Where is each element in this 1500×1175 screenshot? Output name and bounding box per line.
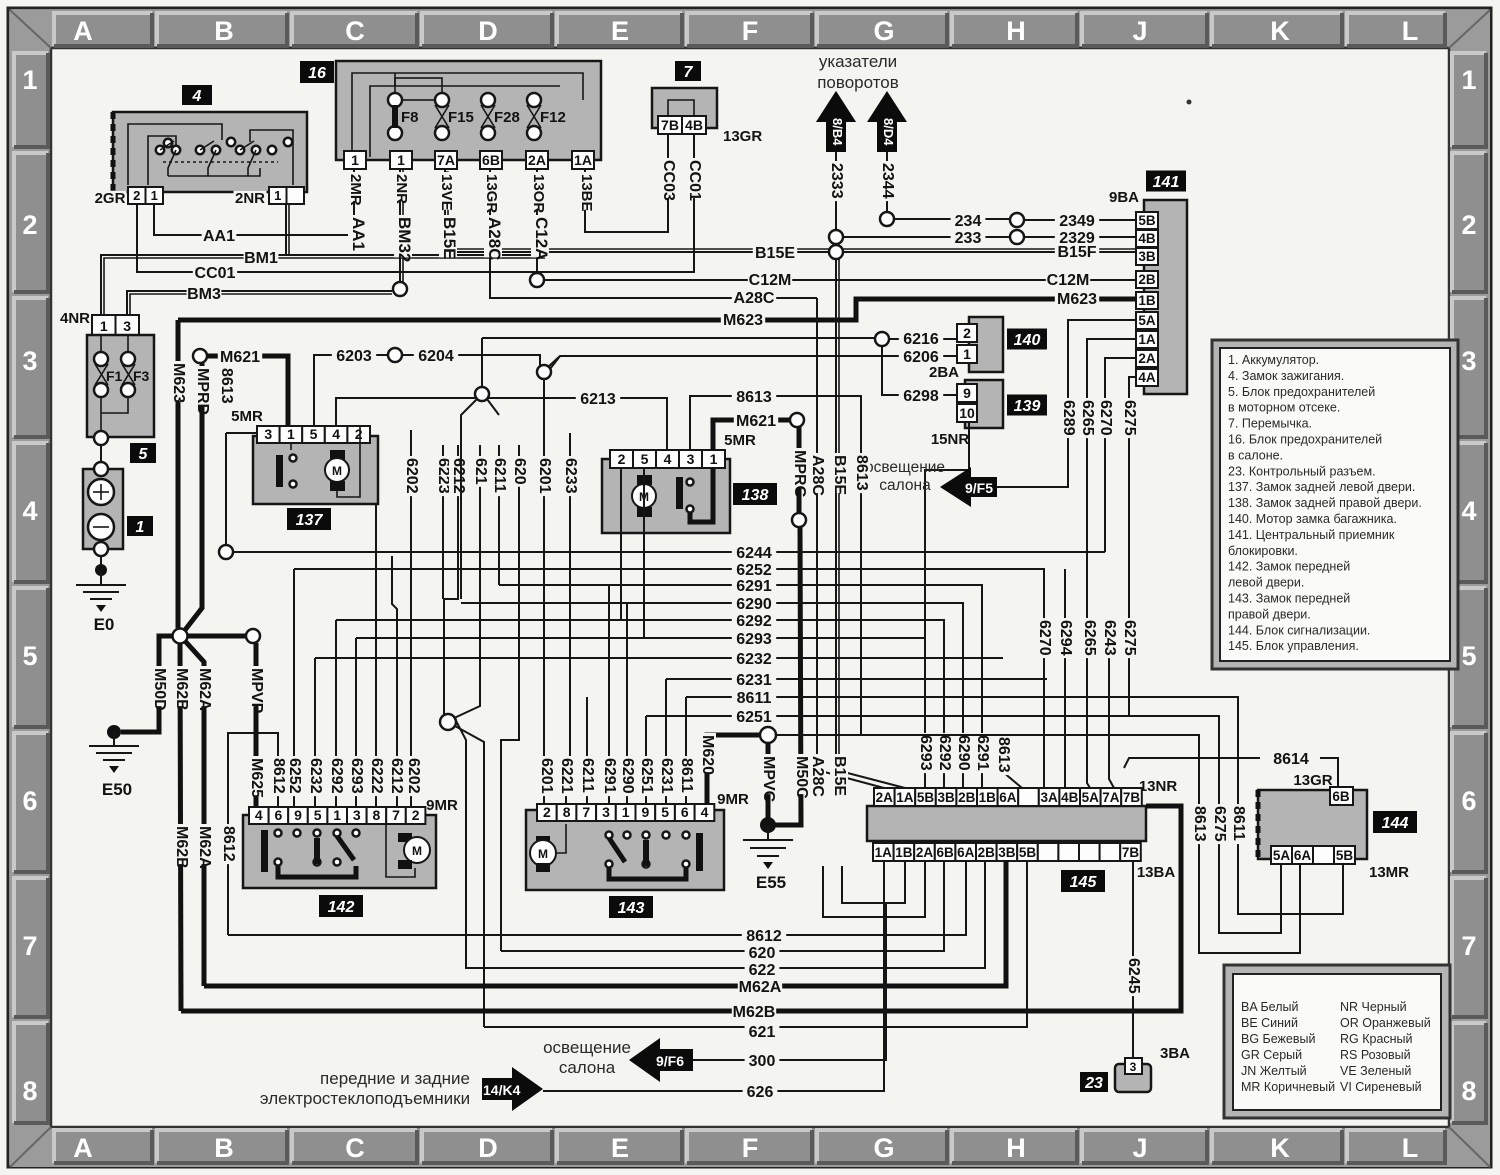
svg-text:4: 4 xyxy=(701,804,709,820)
svg-text:4: 4 xyxy=(1461,496,1476,526)
svg-text:2: 2 xyxy=(412,807,420,823)
svg-text:3: 3 xyxy=(687,451,695,467)
svg-text:2NR: 2NR xyxy=(235,190,265,207)
svg-text:A28C: A28C xyxy=(485,217,504,260)
svg-text:блокировки.: блокировки. xyxy=(1228,544,1298,558)
svg-text:8: 8 xyxy=(1461,1076,1476,1106)
svg-text:1: 1 xyxy=(136,519,145,536)
svg-text:6202: 6202 xyxy=(405,758,422,794)
svg-text:6232: 6232 xyxy=(307,758,324,794)
svg-text:2: 2 xyxy=(133,188,140,203)
svg-text:1: 1 xyxy=(351,152,359,168)
svg-text:5: 5 xyxy=(1461,641,1476,671)
svg-text:5: 5 xyxy=(661,804,669,820)
svg-text:6292: 6292 xyxy=(936,735,953,771)
svg-text:VE Зеленый: VE Зеленый xyxy=(1340,1064,1411,1078)
svg-text:13GR: 13GR xyxy=(723,128,762,145)
svg-text:23: 23 xyxy=(1084,1075,1103,1092)
svg-text:7: 7 xyxy=(392,807,400,823)
svg-text:B15E: B15E xyxy=(831,455,848,495)
svg-text:L: L xyxy=(1402,16,1419,46)
svg-text:A: A xyxy=(73,1133,93,1163)
svg-text:B: B xyxy=(214,1133,234,1163)
svg-text:6212: 6212 xyxy=(450,458,467,494)
svg-text:в салоне.: в салоне. xyxy=(1228,448,1283,462)
svg-text:C12M: C12M xyxy=(1047,272,1090,289)
svg-text:1B: 1B xyxy=(979,790,997,805)
svg-text:1: 1 xyxy=(397,152,405,168)
svg-text:BE Синий: BE Синий xyxy=(1241,1016,1298,1030)
svg-text:MPVC: MPVC xyxy=(760,756,777,803)
svg-text:139: 139 xyxy=(1014,398,1041,415)
svg-text:141: 141 xyxy=(1153,174,1180,191)
svg-text:142: 142 xyxy=(328,899,355,916)
svg-text:4: 4 xyxy=(192,88,202,105)
svg-text:626: 626 xyxy=(747,1084,774,1101)
svg-text:4: 4 xyxy=(255,807,263,823)
svg-text:1: 1 xyxy=(333,807,341,823)
svg-text:6245: 6245 xyxy=(1125,958,1142,994)
svg-text:13BA: 13BA xyxy=(1137,864,1176,881)
svg-text:правой двери.: правой двери. xyxy=(1228,607,1311,621)
svg-text:6290: 6290 xyxy=(955,735,972,771)
svg-text:9: 9 xyxy=(294,807,302,823)
svg-text:4B: 4B xyxy=(1061,790,1079,805)
svg-text:B: B xyxy=(214,16,234,46)
svg-text:143: 143 xyxy=(618,900,645,917)
svg-text:1: 1 xyxy=(151,188,158,203)
svg-text:5B: 5B xyxy=(1019,845,1037,860)
svg-text:2A: 2A xyxy=(876,790,894,805)
svg-text:2344: 2344 xyxy=(879,163,896,199)
svg-text:5: 5 xyxy=(314,807,322,823)
svg-text:9MR: 9MR xyxy=(717,791,749,808)
svg-text:M: M xyxy=(332,464,342,478)
svg-text:3B: 3B xyxy=(1138,249,1156,264)
svg-text:13GR: 13GR xyxy=(483,174,500,213)
svg-text:M62B: M62B xyxy=(173,826,190,869)
svg-text:OR Оранжевый: OR Оранжевый xyxy=(1340,1016,1431,1030)
svg-text:6243: 6243 xyxy=(1101,620,1118,656)
svg-text:1: 1 xyxy=(287,426,295,442)
svg-text:передние и задние: передние и задние xyxy=(320,1069,470,1088)
svg-text:B15E: B15E xyxy=(755,245,795,262)
svg-text:6265: 6265 xyxy=(1081,620,1098,656)
svg-text:8611: 8611 xyxy=(678,758,695,793)
svg-text:5. Блок предохранителей: 5. Блок предохранителей xyxy=(1228,385,1375,399)
svg-text:6211: 6211 xyxy=(579,758,596,793)
svg-text:B15E: B15E xyxy=(440,217,459,260)
svg-text:указатели: указатели xyxy=(819,52,897,71)
svg-text:1: 1 xyxy=(274,188,281,203)
svg-text:6: 6 xyxy=(1461,786,1476,816)
svg-text:F1: F1 xyxy=(106,368,123,384)
svg-text:F: F xyxy=(742,16,759,46)
svg-text:145: 145 xyxy=(1070,874,1098,891)
svg-text:8613: 8613 xyxy=(995,737,1012,773)
svg-text:6292: 6292 xyxy=(328,758,345,794)
svg-text:6293: 6293 xyxy=(736,631,772,648)
svg-text:A28C: A28C xyxy=(734,290,775,307)
svg-text:M: M xyxy=(412,844,422,858)
svg-text:BG Бежевый: BG Бежевый xyxy=(1241,1032,1315,1046)
svg-text:8: 8 xyxy=(373,807,381,823)
svg-text:16: 16 xyxy=(308,65,326,82)
svg-text:6201: 6201 xyxy=(538,758,555,794)
svg-text:1B: 1B xyxy=(1138,293,1156,308)
svg-text:3B: 3B xyxy=(937,790,955,805)
svg-text:E50: E50 xyxy=(102,780,132,799)
svg-text:1B: 1B xyxy=(895,845,913,860)
svg-text:BM1: BM1 xyxy=(244,250,278,267)
svg-text:5: 5 xyxy=(641,451,649,467)
svg-text:6203: 6203 xyxy=(336,348,372,365)
svg-text:8612: 8612 xyxy=(746,928,782,945)
svg-text:5MR: 5MR xyxy=(231,408,263,425)
svg-text:4A: 4A xyxy=(1138,370,1156,385)
svg-text:3: 3 xyxy=(353,807,361,823)
svg-text:B15E: B15E xyxy=(831,756,848,796)
svg-text:5: 5 xyxy=(22,641,37,671)
svg-text:7A: 7A xyxy=(437,152,455,168)
svg-text:M623: M623 xyxy=(723,312,763,329)
svg-text:138: 138 xyxy=(742,487,769,504)
svg-text:поворотов: поворотов xyxy=(817,73,899,92)
svg-text:1: 1 xyxy=(963,346,971,362)
svg-text:138. Замок задней правой двери: 138. Замок задней правой двери. xyxy=(1228,496,1422,510)
svg-text:6221: 6221 xyxy=(558,758,575,794)
svg-text:137: 137 xyxy=(296,512,324,529)
svg-text:9MR: 9MR xyxy=(426,797,458,814)
svg-text:D: D xyxy=(478,1133,498,1163)
svg-text:GR Серый: GR Серый xyxy=(1241,1048,1302,1062)
svg-text:6B: 6B xyxy=(1332,789,1350,804)
svg-text:E: E xyxy=(611,1133,629,1163)
svg-text:C: C xyxy=(345,16,365,46)
svg-text:3: 3 xyxy=(22,346,37,376)
svg-text:23. Контрольный разъем.: 23. Контрольный разъем. xyxy=(1228,464,1376,478)
svg-text:9/F6: 9/F6 xyxy=(656,1053,684,1069)
svg-text:2: 2 xyxy=(22,210,37,240)
svg-text:6252: 6252 xyxy=(736,562,772,579)
svg-text:4B: 4B xyxy=(685,117,703,133)
svg-text:143. Замок передней: 143. Замок передней xyxy=(1228,592,1350,606)
svg-text:6A: 6A xyxy=(957,845,975,860)
svg-text:MPRD: MPRD xyxy=(194,368,211,415)
svg-text:6202: 6202 xyxy=(403,458,420,494)
svg-text:6270: 6270 xyxy=(1097,400,1114,436)
svg-text:6B: 6B xyxy=(482,152,500,168)
svg-text:C12M: C12M xyxy=(749,272,792,289)
svg-text:140. Мотор замка багажника.: 140. Мотор замка багажника. xyxy=(1228,512,1397,526)
svg-text:300: 300 xyxy=(749,1053,776,1070)
svg-text:13VE: 13VE xyxy=(438,174,455,211)
svg-text:3A: 3A xyxy=(1040,790,1058,805)
svg-text:CC01: CC01 xyxy=(686,160,703,201)
svg-text:M50C: M50C xyxy=(793,756,810,799)
svg-text:5: 5 xyxy=(139,446,149,463)
svg-text:144. Блок сигнализации.: 144. Блок сигнализации. xyxy=(1228,623,1370,637)
svg-text:5MR: 5MR xyxy=(724,432,756,449)
svg-text:2B: 2B xyxy=(1138,272,1156,287)
svg-text:6275: 6275 xyxy=(1211,806,1228,842)
svg-text:2BA: 2BA xyxy=(929,364,959,381)
svg-text:8: 8 xyxy=(563,804,571,820)
svg-text:M623: M623 xyxy=(1057,291,1097,308)
svg-text:RS Розовый: RS Розовый xyxy=(1340,1048,1411,1062)
svg-text:233: 233 xyxy=(955,230,982,247)
svg-text:H: H xyxy=(1006,16,1026,46)
svg-text:3: 3 xyxy=(602,804,610,820)
svg-text:144: 144 xyxy=(1382,815,1409,832)
svg-text:234: 234 xyxy=(955,213,982,230)
svg-text:2NR: 2NR xyxy=(393,174,410,204)
svg-text:8612: 8612 xyxy=(270,758,287,794)
svg-text:MR Коричневый: MR Коричневый xyxy=(1241,1080,1335,1094)
svg-text:E0: E0 xyxy=(94,615,115,634)
svg-text:6251: 6251 xyxy=(638,758,655,794)
svg-text:142. Замок передней: 142. Замок передней xyxy=(1228,560,1350,574)
svg-text:5B: 5B xyxy=(1138,213,1156,228)
svg-text:7. Перемычка.: 7. Перемычка. xyxy=(1228,417,1312,431)
svg-text:6A: 6A xyxy=(999,790,1017,805)
svg-text:5A: 5A xyxy=(1273,848,1291,863)
svg-text:M620: M620 xyxy=(699,735,716,775)
svg-text:L: L xyxy=(1402,1133,1419,1163)
svg-text:2MR: 2MR xyxy=(347,174,364,206)
svg-text:3: 3 xyxy=(123,318,131,334)
svg-text:2: 2 xyxy=(963,325,971,341)
svg-text:6293: 6293 xyxy=(917,735,934,771)
svg-text:3BA: 3BA xyxy=(1160,1045,1190,1062)
svg-text:2: 2 xyxy=(618,451,626,467)
svg-text:8613: 8613 xyxy=(736,389,772,406)
svg-text:K: K xyxy=(1270,1133,1290,1163)
svg-text:BM32: BM32 xyxy=(395,217,414,262)
svg-text:M625: M625 xyxy=(248,758,265,798)
svg-text:1: 1 xyxy=(22,65,37,95)
svg-text:AA1: AA1 xyxy=(349,217,368,251)
svg-text:6275: 6275 xyxy=(1121,620,1138,656)
svg-text:F15: F15 xyxy=(448,109,474,126)
svg-text:621: 621 xyxy=(472,458,489,485)
svg-text:5B: 5B xyxy=(917,790,935,805)
svg-text:6: 6 xyxy=(275,807,283,823)
svg-text:F3: F3 xyxy=(133,368,150,384)
svg-text:6289: 6289 xyxy=(1060,400,1077,436)
svg-text:7B: 7B xyxy=(1123,790,1141,805)
svg-text:JN Желтый: JN Желтый xyxy=(1241,1064,1307,1078)
svg-text:M62B: M62B xyxy=(733,1004,776,1021)
svg-text:MPVP: MPVP xyxy=(248,668,265,714)
svg-text:7: 7 xyxy=(22,931,37,961)
svg-text:B15F: B15F xyxy=(1057,244,1096,261)
svg-text:NR Черный: NR Черный xyxy=(1340,1000,1407,1014)
svg-text:6244: 6244 xyxy=(736,545,772,562)
svg-text:6290: 6290 xyxy=(619,758,636,794)
svg-text:10: 10 xyxy=(959,405,975,421)
svg-text:6231: 6231 xyxy=(658,758,675,794)
svg-text:7: 7 xyxy=(684,64,694,81)
svg-text:6231: 6231 xyxy=(736,672,772,689)
svg-text:6275: 6275 xyxy=(1121,400,1138,436)
svg-text:8611: 8611 xyxy=(1230,806,1247,841)
svg-text:9: 9 xyxy=(642,804,650,820)
svg-text:D: D xyxy=(478,16,498,46)
svg-text:CC01: CC01 xyxy=(195,265,236,282)
svg-text:6291: 6291 xyxy=(601,758,618,794)
svg-text:BA Белый: BA Белый xyxy=(1241,1000,1298,1014)
svg-text:2: 2 xyxy=(543,804,551,820)
svg-text:7: 7 xyxy=(582,804,590,820)
svg-text:13BE: 13BE xyxy=(578,174,595,212)
svg-text:9: 9 xyxy=(963,385,971,401)
svg-text:6292: 6292 xyxy=(736,613,772,630)
svg-text:6265: 6265 xyxy=(1079,400,1096,436)
svg-text:M62B: M62B xyxy=(173,668,190,711)
svg-text:G: G xyxy=(873,1133,894,1163)
svg-text:C12A: C12A xyxy=(532,217,551,260)
svg-text:левой двери.: левой двери. xyxy=(1228,576,1304,590)
svg-text:6294: 6294 xyxy=(1057,620,1074,656)
svg-text:13GR: 13GR xyxy=(1293,772,1332,789)
svg-text:C: C xyxy=(345,1133,365,1163)
svg-text:6: 6 xyxy=(22,786,37,816)
svg-text:M623: M623 xyxy=(170,363,187,403)
svg-text:6: 6 xyxy=(681,804,689,820)
svg-text:2349: 2349 xyxy=(1059,213,1095,230)
svg-text:621: 621 xyxy=(749,1024,776,1041)
svg-text:6213: 6213 xyxy=(580,391,616,408)
svg-text:3B: 3B xyxy=(998,845,1016,860)
svg-text:MPRG: MPRG xyxy=(791,450,808,498)
svg-text:4: 4 xyxy=(332,426,340,442)
svg-text:4. Замок зажигания.: 4. Замок зажигания. xyxy=(1228,369,1344,383)
svg-text:6206: 6206 xyxy=(903,349,939,366)
svg-text:M62A: M62A xyxy=(196,668,213,711)
svg-text:9BA: 9BA xyxy=(1109,189,1139,206)
svg-text:M621: M621 xyxy=(220,349,260,366)
svg-text:137. Замок задней левой двери.: 137. Замок задней левой двери. xyxy=(1228,480,1415,494)
svg-text:M62A: M62A xyxy=(739,979,782,996)
svg-text:6298: 6298 xyxy=(903,388,939,405)
svg-text:6201: 6201 xyxy=(536,458,553,494)
svg-text:13OR: 13OR xyxy=(530,174,547,213)
svg-text:1: 1 xyxy=(1461,65,1476,95)
svg-text:6222: 6222 xyxy=(368,758,385,794)
svg-text:F28: F28 xyxy=(494,109,520,126)
svg-text:2B: 2B xyxy=(978,845,996,860)
svg-text:6233: 6233 xyxy=(562,458,579,494)
svg-text:6251: 6251 xyxy=(736,709,772,726)
svg-text:16. Блок предохранителей: 16. Блок предохранителей xyxy=(1228,433,1382,447)
svg-text:7A: 7A xyxy=(1102,790,1120,805)
svg-text:2B: 2B xyxy=(958,790,976,805)
svg-text:A: A xyxy=(73,16,93,46)
svg-text:BM3: BM3 xyxy=(187,286,221,303)
svg-text:освещение: освещение xyxy=(865,459,945,476)
svg-text:1. Аккумулятор.: 1. Аккумулятор. xyxy=(1228,353,1319,367)
svg-text:2GR: 2GR xyxy=(95,190,126,207)
svg-text:4NR: 4NR xyxy=(60,310,90,327)
svg-text:1A: 1A xyxy=(896,790,914,805)
svg-text:6291: 6291 xyxy=(736,578,772,595)
svg-text:AA1: AA1 xyxy=(203,228,235,245)
svg-text:3: 3 xyxy=(1130,1060,1137,1074)
svg-text:3: 3 xyxy=(1461,346,1476,376)
svg-text:8/D4: 8/D4 xyxy=(881,118,896,146)
svg-text:салона: салона xyxy=(559,1058,616,1077)
svg-text:F12: F12 xyxy=(540,109,566,126)
svg-text:G: G xyxy=(873,16,894,46)
svg-text:1A: 1A xyxy=(875,845,893,860)
svg-text:2: 2 xyxy=(1461,210,1476,240)
svg-text:8613: 8613 xyxy=(853,455,870,491)
svg-text:4: 4 xyxy=(664,451,672,467)
svg-text:2A: 2A xyxy=(528,152,546,168)
svg-text:8612: 8612 xyxy=(220,826,237,862)
svg-text:1: 1 xyxy=(710,451,718,467)
svg-text:4B: 4B xyxy=(1138,231,1156,246)
svg-text:M621: M621 xyxy=(736,413,776,430)
svg-text:CC03: CC03 xyxy=(660,160,677,201)
svg-text:A28C: A28C xyxy=(809,455,826,496)
svg-text:2A: 2A xyxy=(916,845,934,860)
svg-text:13NR: 13NR xyxy=(1139,778,1178,795)
svg-text:1: 1 xyxy=(622,804,630,820)
svg-text:8: 8 xyxy=(22,1076,37,1106)
svg-text:7B: 7B xyxy=(1122,845,1140,860)
svg-text:7B: 7B xyxy=(661,117,679,133)
svg-text:8613: 8613 xyxy=(1191,806,1208,842)
svg-text:1: 1 xyxy=(100,318,108,334)
svg-text:6252: 6252 xyxy=(286,758,303,794)
svg-text:5A: 5A xyxy=(1138,313,1156,328)
svg-text:8613: 8613 xyxy=(218,368,235,404)
svg-text:620: 620 xyxy=(749,945,776,962)
svg-text:8/B4: 8/B4 xyxy=(830,118,845,146)
svg-text:E: E xyxy=(611,16,629,46)
svg-text:1A: 1A xyxy=(1138,332,1156,347)
svg-text:J: J xyxy=(1132,16,1147,46)
svg-text:6270: 6270 xyxy=(1036,620,1053,656)
svg-text:141. Центральный приемник: 141. Центральный приемник xyxy=(1228,528,1395,542)
svg-text:6216: 6216 xyxy=(903,331,939,348)
svg-text:1A: 1A xyxy=(574,152,592,168)
svg-text:6B: 6B xyxy=(936,845,954,860)
svg-text:F8: F8 xyxy=(401,109,419,126)
svg-text:6293: 6293 xyxy=(348,758,365,794)
svg-text:4: 4 xyxy=(22,496,37,526)
svg-text:7: 7 xyxy=(1461,931,1476,961)
svg-text:140: 140 xyxy=(1014,332,1041,349)
svg-text:620: 620 xyxy=(511,458,528,485)
svg-text:A28C: A28C xyxy=(809,756,826,797)
svg-text:6204: 6204 xyxy=(418,348,454,365)
svg-text:3: 3 xyxy=(264,426,272,442)
svg-text:F: F xyxy=(742,1133,759,1163)
svg-text:5B: 5B xyxy=(1336,848,1354,863)
svg-text:145. Блок управления.: 145. Блок управления. xyxy=(1228,639,1359,653)
svg-text:6291: 6291 xyxy=(974,735,991,771)
svg-text:M: M xyxy=(538,847,548,861)
svg-text:K: K xyxy=(1270,16,1290,46)
svg-text:VI Сиреневый: VI Сиреневый xyxy=(1340,1080,1422,1094)
svg-text:M50D: M50D xyxy=(151,668,168,711)
svg-text:6232: 6232 xyxy=(736,651,772,668)
svg-text:5A: 5A xyxy=(1082,790,1100,805)
svg-text:RG Красный: RG Красный xyxy=(1340,1032,1413,1046)
